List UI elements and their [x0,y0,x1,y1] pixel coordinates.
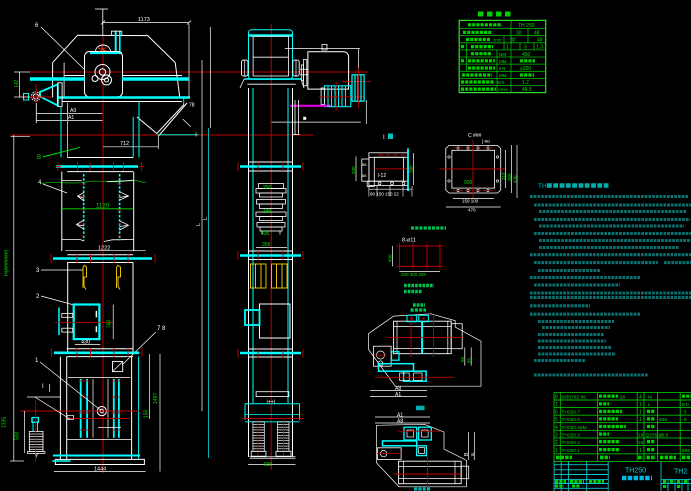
svg-text:a: a [470,453,476,456]
svg-text:358: 358 [262,242,271,248]
svg-text:712: 712 [120,141,129,147]
svg-text:1173: 1173 [138,17,150,23]
svg-text:TH250.45M: TH250.45M [562,425,587,431]
svg-text:C ###: C ### [468,133,482,139]
svg-text:180: 180 [263,209,272,215]
svg-text:8: 8 [684,417,687,423]
svg-text:836: 836 [659,417,667,423]
svg-text:TH250.2: TH250.2 [562,440,581,446]
svg-text:500: 500 [15,431,21,440]
svg-text:TH2: TH2 [674,469,687,476]
svg-text:4: 4 [639,395,642,401]
svg-text:48: 48 [537,38,543,44]
svg-text:1335: 1335 [2,417,8,428]
svg-text:L: L [648,402,651,408]
svg-text:450: 450 [522,52,531,58]
svg-text:L: L [203,217,209,220]
svg-text:5: 5 [555,417,558,423]
svg-text:30: 30 [510,38,516,44]
svg-text:90 150 150 22: 90 150 150 22 [370,192,399,197]
svg-text:H(#######): H(#######) [4,249,10,276]
svg-text:7 8: 7 8 [157,326,166,332]
svg-text:6: 6 [555,410,558,416]
svg-text:430: 430 [81,340,90,346]
svg-text:330: 330 [351,166,356,174]
svg-text:H2: H2 [14,80,20,87]
svg-text:360: 360 [507,173,512,181]
svg-text:1444: 1444 [94,466,106,472]
svg-text:9.0: 9.0 [682,402,689,408]
svg-text:48: 48 [534,31,540,37]
svg-text:200 300 250: 200 300 250 [401,272,427,277]
svg-text:1120: 1120 [96,204,110,210]
svg-text:L: L [196,223,202,226]
svg-text:mm: mm [494,38,502,43]
svg-text:78: 78 [189,103,195,109]
svg-text:A9: A9 [70,108,76,114]
svg-text:TH: TH [538,183,547,190]
svg-text:86: 86 [460,356,465,362]
svg-text:B: B [37,155,41,161]
svg-text:r/min: r/min [498,87,508,92]
svg-text:8-ø11: 8-ø11 [402,238,416,244]
svg-text:900: 900 [464,180,473,186]
svg-text:48.5: 48.5 [522,87,532,93]
svg-text:430: 430 [513,175,518,183]
svg-text:A1: A1 [395,392,401,398]
svg-text:930: 930 [264,462,273,468]
svg-text:GB5782-86: GB5782-86 [562,395,587,401]
svg-text:A1: A1 [68,115,74,121]
svg-text:3: 3 [524,45,527,51]
svg-text:NM: NM [499,52,506,57]
svg-text:16: 16 [638,440,644,446]
svg-text:1: 1 [639,410,642,416]
svg-text:85: 85 [467,357,472,363]
svg-text:2: 2 [555,440,558,446]
svg-text:1: 1 [506,45,509,51]
svg-text:TH250.6: TH250.6 [562,417,581,423]
svg-text:16: 16 [638,432,644,438]
svg-text:N/S: N/S [497,80,505,85]
svg-text:310: 310 [501,172,506,180]
svg-text:1.2: 1.2 [522,80,529,86]
svg-text:250: 250 [263,185,272,191]
svg-text:470: 470 [468,208,476,213]
svg-text:5: 5 [684,410,687,416]
svg-text:M: M [648,395,652,401]
svg-text:88: 88 [362,162,367,167]
svg-text:I-12: I-12 [378,173,387,179]
svg-text:≥320: ≥320 [520,66,531,72]
svg-text:1: 1 [639,402,642,408]
svg-text:1: 1 [639,417,642,423]
svg-text:TH250.3: TH250.3 [562,432,581,438]
svg-text:436: 436 [261,231,270,237]
svg-text:MM: MM [499,59,507,64]
svg-text:1: 1 [555,448,558,454]
svg-text:4: 4 [555,425,558,431]
svg-text:TH 250: TH 250 [518,23,535,29]
svg-text:A8: A8 [397,418,403,424]
svg-text:7: 7 [555,402,558,408]
svg-text:20.6: 20.6 [659,432,669,438]
svg-text:8: 8 [555,395,558,401]
svg-text:MM: MM [499,73,507,78]
svg-text:760: 760 [107,319,113,328]
svg-text:3: 3 [555,432,558,438]
svg-text:1.3: 1.3 [536,45,543,51]
svg-text:400: 400 [388,254,393,262]
svg-text:30: 30 [516,31,522,37]
svg-text:KN: KN [499,66,505,71]
svg-text:20: 20 [620,395,626,401]
svg-text:TH250: TH250 [625,468,646,475]
svg-text:88: 88 [362,173,367,178]
svg-text:1497: 1497 [153,393,159,404]
svg-text:1: 1 [639,448,642,454]
svg-text:TH250.1: TH250.1 [562,448,581,454]
svg-text:]-#0: ]-#0 [482,139,490,144]
svg-text:150 100: 150 100 [462,199,479,204]
svg-text:TH250.7: TH250.7 [562,410,581,416]
svg-text:I++I: I++I [267,400,276,406]
svg-text:360: 360 [409,165,414,173]
svg-text:150: 150 [144,409,150,418]
svg-text:688: 688 [682,448,690,454]
